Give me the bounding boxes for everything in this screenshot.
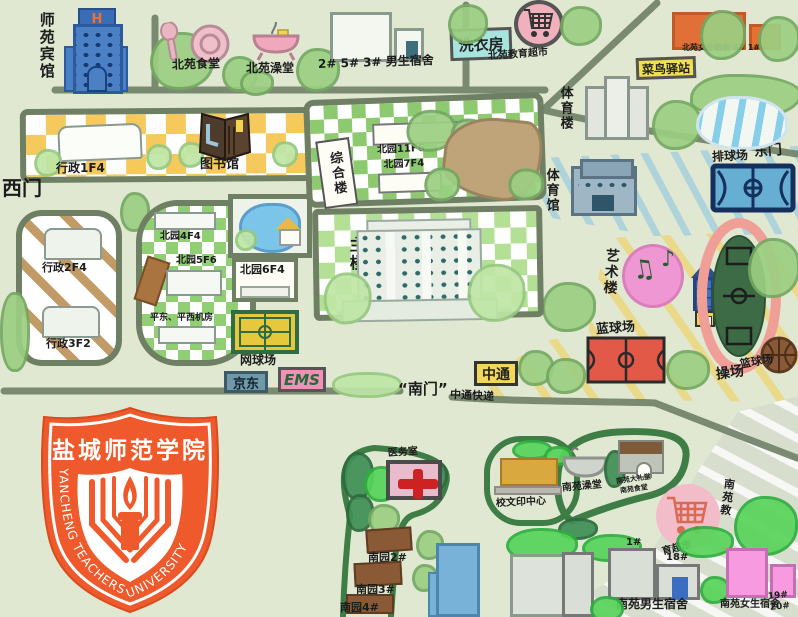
nanyuan-hall-building [618, 440, 664, 474]
clinic-sign [386, 460, 442, 500]
print-center-building [500, 458, 558, 486]
jd-label: 京东 [233, 373, 259, 392]
library-label: 图书馆 [200, 158, 239, 172]
jd-sign: 京东 [224, 371, 268, 393]
music-note-icon: ♫ [630, 253, 658, 287]
shopping-cart-icon [522, 6, 556, 42]
university-logo: 盐城师范学院 YANCHENG TEACHERS UNIVERSITY [30, 402, 230, 616]
logo-cn-text: 盐城师范学院 [52, 437, 208, 464]
music-note-icon-2: ♪ [661, 247, 675, 272]
female-dorm-pink-1 [726, 548, 768, 598]
south-blue-tower [436, 543, 480, 617]
complex-label: 综合楼 [324, 149, 349, 196]
cainiao-sign: 菜鸟驿站 [636, 56, 697, 80]
south-gate-label: “南门” [398, 382, 448, 398]
admin1-building [57, 123, 142, 162]
red-cross-icon [398, 469, 438, 499]
bathtub-icon [248, 20, 304, 62]
by4-label: 北园4F4 [160, 232, 201, 243]
hotel-building: H [64, 8, 126, 88]
pond-block [228, 194, 312, 258]
nanyuan-bathtub-icon [560, 446, 610, 482]
north-canteen-label: 北苑食堂 [172, 57, 220, 71]
admin2-label: 行政2F4 [42, 262, 87, 274]
campus-map: 师苑宾馆 H 北苑食堂 北苑澡堂 2# 5# 3# 男生宿舍 洗衣房 北苑教育超… [0, 0, 798, 617]
b1-label: 1# [626, 538, 641, 549]
hotel-label: 师苑宾馆 [38, 12, 54, 104]
clinic-label: 医务室 [388, 447, 419, 460]
by6-label: 北园6F4 [240, 264, 285, 276]
blue-court [586, 336, 666, 384]
by7-label: 北园7F4 [383, 159, 424, 171]
book-icon [196, 112, 254, 162]
b18-building [656, 564, 700, 600]
cainiao-label: 菜鸟驿站 [642, 59, 691, 78]
zto-sign: 中通 [474, 361, 518, 386]
machine-rooms-label: 平东、平西机房 [150, 314, 213, 323]
by5-building [166, 270, 222, 296]
ny2-building [365, 526, 413, 553]
machine-rooms-building [158, 326, 216, 344]
b1-building [608, 548, 656, 600]
blue-court-label: 蓝球场 [596, 321, 636, 337]
ny4-label: 南园4# [340, 602, 379, 614]
admin3-building [42, 306, 100, 338]
ems-label: EMS [284, 371, 320, 389]
b18-label: 18# [666, 553, 688, 564]
ems-sign: EMS [278, 367, 326, 392]
volleyball-label: 排球场 [712, 149, 749, 163]
complex-block: 综合楼 北园11F6 北园7F4 [303, 92, 547, 208]
south-male-dorm-label: 南苑男生宿舍 [616, 598, 688, 611]
main-building-block: 主楼 [312, 205, 544, 321]
zto-label: 中通 [482, 364, 510, 384]
tennis-court [231, 310, 299, 354]
south-center-building [510, 554, 570, 617]
gym-building [571, 166, 637, 216]
pond-cloud [696, 96, 788, 150]
admin1-label: 行政1F4 [56, 162, 105, 175]
art-building-circle: ♫ ♪ [622, 244, 684, 308]
tennis-label: 网球场 [240, 354, 276, 367]
zto-express-label: 中通快递 [450, 389, 495, 403]
sports-building-tower [604, 76, 630, 140]
admin2-building [44, 228, 102, 260]
by4-building [154, 212, 216, 230]
complex-banner: 综合楼 [315, 137, 358, 209]
by5-label: 北园5F6 [176, 256, 217, 267]
admin3-label: 行政3F2 [46, 338, 91, 350]
volleyball-court [710, 163, 796, 213]
sports-building-label: 体育楼 [558, 86, 572, 146]
main-building [356, 228, 482, 306]
north-bathhouse-label: 北苑澡堂 [246, 62, 294, 75]
west-gate-label: 西门 [2, 178, 42, 199]
gazebo-icon [275, 217, 301, 245]
